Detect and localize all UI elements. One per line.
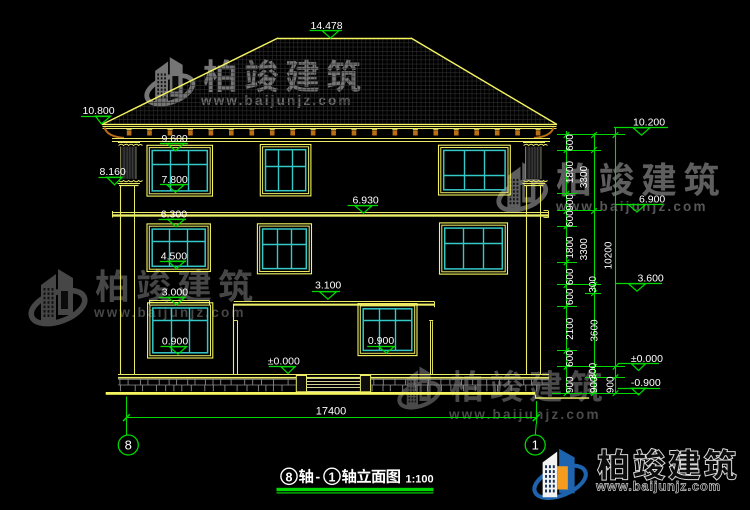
- svg-text:600: 600: [565, 268, 576, 285]
- svg-text:10.800: 10.800: [83, 105, 115, 117]
- svg-text:8.160: 8.160: [100, 166, 126, 178]
- svg-text:3.100: 3.100: [315, 280, 341, 292]
- svg-text:900: 900: [606, 376, 617, 393]
- svg-text:www.baijunjz.com: www.baijunjz.com: [448, 407, 601, 422]
- svg-text:0.900: 0.900: [368, 335, 394, 347]
- svg-text:8: 8: [286, 470, 293, 484]
- svg-text:900: 900: [565, 376, 576, 393]
- svg-text:600: 600: [565, 210, 576, 227]
- svg-text:1800: 1800: [565, 160, 576, 183]
- svg-text:600: 600: [565, 288, 576, 305]
- svg-text:900: 900: [589, 376, 600, 393]
- svg-text:3.600: 3.600: [638, 273, 664, 285]
- svg-text:6.300: 6.300: [161, 208, 187, 220]
- svg-text:-0.900: -0.900: [631, 377, 661, 389]
- svg-text:-: -: [316, 469, 321, 485]
- svg-text:3300: 3300: [579, 238, 590, 261]
- svg-text:6.900: 6.900: [639, 194, 665, 206]
- svg-text:0.900: 0.900: [162, 335, 188, 347]
- svg-text:www.baijunjz.com: www.baijunjz.com: [595, 479, 721, 494]
- svg-text:600: 600: [565, 350, 576, 367]
- svg-text:6.930: 6.930: [353, 195, 379, 207]
- svg-text:600: 600: [565, 134, 576, 151]
- svg-text:17400: 17400: [316, 406, 347, 418]
- svg-text:1: 1: [329, 470, 336, 484]
- svg-text:900: 900: [565, 194, 576, 211]
- svg-text:10200: 10200: [604, 241, 615, 269]
- svg-text:10.200: 10.200: [633, 117, 665, 129]
- svg-text:3600: 3600: [590, 319, 601, 342]
- svg-text:±0.000: ±0.000: [268, 355, 300, 367]
- svg-text:300: 300: [588, 276, 599, 293]
- svg-text:1:100: 1:100: [406, 474, 434, 486]
- svg-text:8: 8: [125, 438, 132, 453]
- svg-text:2100: 2100: [565, 317, 576, 340]
- svg-text:1: 1: [532, 438, 539, 453]
- svg-text:3300: 3300: [579, 165, 590, 188]
- svg-text:1800: 1800: [565, 236, 576, 259]
